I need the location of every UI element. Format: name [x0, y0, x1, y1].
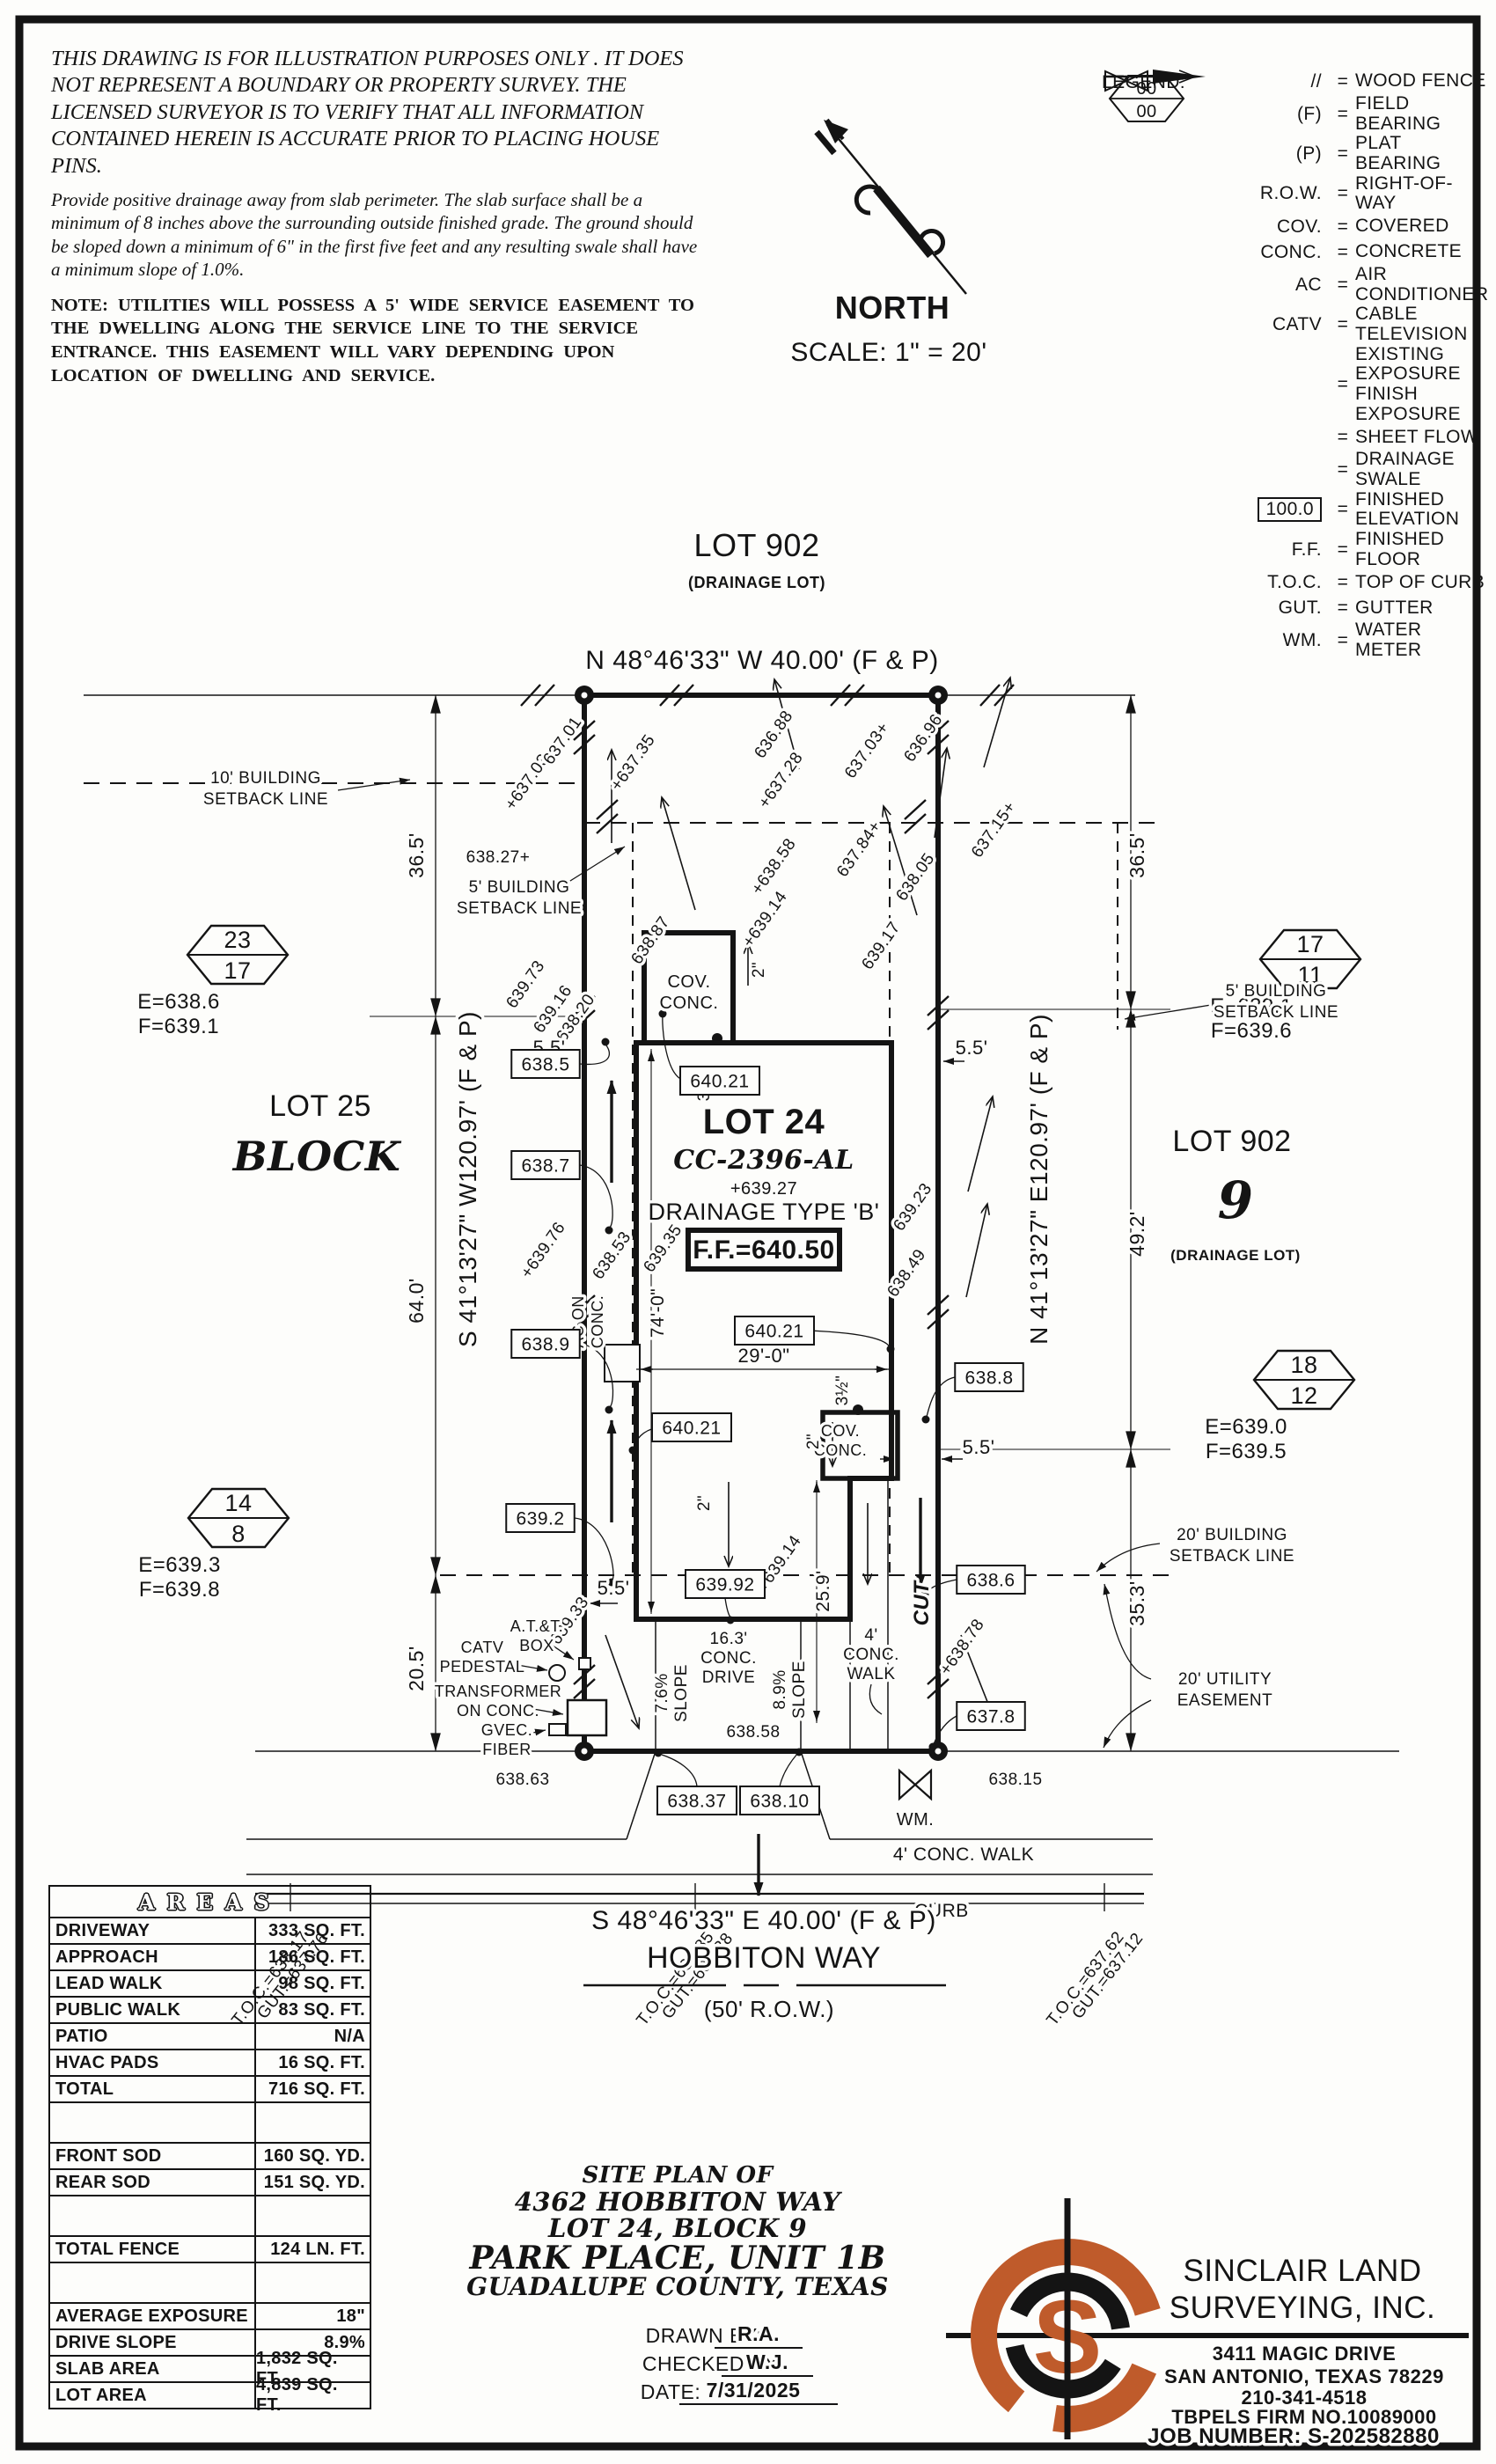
drawn-by-value: R.A.: [737, 2322, 780, 2345]
water-meter-icon: [899, 1771, 931, 1799]
plan-label: TRANSFORMER: [435, 1683, 562, 1700]
plan-label: 36.5': [1126, 832, 1148, 878]
plan-label: FIBER: [482, 1741, 532, 1758]
areas-row-value: [256, 2196, 370, 2235]
company-address-line1: 3411 MAGIC DRIVE: [1213, 2343, 1397, 2365]
spot-elevation: 638.27+: [466, 848, 531, 867]
lot25-block-label: BLOCK: [231, 1133, 402, 1180]
plan-label: 4': [864, 1626, 877, 1645]
areas-row-value: N/A: [256, 2024, 370, 2049]
north-label: NORTH: [835, 290, 950, 326]
plan-label: CONC.: [843, 1646, 899, 1664]
areas-row-value: 16 SQ. FT.: [256, 2050, 370, 2075]
drainage-note-paragraph: Provide positive drainage away from slab…: [51, 188, 709, 282]
plan-label: 5' BUILDING: [1226, 982, 1327, 1001]
plan-label: A.T.&T.: [510, 1617, 564, 1635]
company-name-line1: SINCLAIR LAND: [1183, 2254, 1421, 2288]
legend-symbol: (F): [1206, 104, 1331, 125]
plan-label: 20.5': [405, 1646, 428, 1691]
plan-label: WM.: [897, 1810, 935, 1830]
equals-sign: =: [1331, 630, 1355, 651]
bearing-south: S 48°46'33" E 40.00' (F & P): [591, 1906, 936, 1935]
street-row-label: (50' R.O.W.): [704, 1996, 834, 2022]
finished-elevation-value: 638.37: [667, 1792, 726, 1812]
plan-label: BOX: [519, 1637, 554, 1654]
exposure-f-value: F=639.1: [138, 1015, 219, 1038]
legend-description: SHEET FLOW: [1355, 428, 1489, 448]
lot902-right-sub: (DRAINAGE LOT): [1170, 1247, 1301, 1264]
legend-description: PLAT BEARING: [1355, 134, 1489, 173]
plan-label: 49.2': [1126, 1211, 1148, 1257]
sheet-flow-arrow: [966, 1204, 987, 1297]
areas-row-value: 18": [256, 2304, 370, 2328]
finished-elevation-value: 638.9: [521, 1335, 569, 1355]
sheet-flow-arrow: [605, 1635, 639, 1728]
lot24-label: LOT 24: [703, 1103, 825, 1141]
ac-pad-icon: [605, 1345, 640, 1382]
bearing-west: S 41°13'27" W120.97' (F & P): [454, 1011, 481, 1347]
legend-row: COV.=COVERED: [1206, 214, 1489, 239]
spot-elevation: 637.03+: [841, 719, 893, 782]
spot-elevation: 638.63: [495, 1771, 549, 1789]
plan-label: 2": [750, 962, 768, 978]
plan-label: PEDESTAL: [440, 1658, 525, 1676]
street-name: HOBBITON WAY: [647, 1941, 881, 1975]
utility-symbols: [549, 1345, 640, 1735]
finished-elevation-value: 638.10: [750, 1792, 809, 1812]
legend-description: CONCRETE: [1355, 242, 1489, 262]
areas-row-value: 333 SQ. FT.: [256, 1918, 370, 1943]
areas-row-label: PUBLIC WALK: [50, 1998, 256, 2022]
plan-label: SLOPE: [672, 1664, 691, 1722]
company-address-line2: SAN ANTONIO, TEXAS 78229: [1164, 2365, 1444, 2387]
plan-label: CUT: [910, 1580, 934, 1626]
lot902-right-block-number: 9: [1218, 1170, 1254, 1230]
areas-table-row: [50, 2195, 370, 2235]
plan-label: ON CONC.: [457, 1702, 539, 1720]
existing-exposure-value: 14: [224, 1490, 252, 1516]
areas-row-value: 716 SQ. FT.: [256, 2077, 370, 2101]
spot-elevation: 639.17: [858, 919, 904, 973]
job-number: JOB NUMBER: S-202582880: [1148, 2424, 1440, 2448]
equals-sign: =: [1331, 71, 1355, 92]
legend-row: (F)=FIELD BEARING: [1206, 94, 1489, 134]
lot24-spot-elevation: +639.27: [730, 1179, 797, 1199]
spot-elevation: +638.58: [748, 835, 800, 898]
plan-label: 5' BUILDING: [469, 878, 570, 897]
areas-row-value: 186 SQ. FT.: [256, 1945, 370, 1969]
exposure-e-value: E=639.0: [1205, 1415, 1287, 1439]
areas-row-value: 83 SQ. FT.: [256, 1998, 370, 2022]
legend-row: =DRAINAGE SWALE: [1206, 450, 1489, 489]
titleblock-line4: PARK PLACE, UNIT 1B: [468, 2240, 885, 2277]
plan-label: 5.5': [598, 1577, 630, 1599]
areas-row-value: 151 SQ. YD.: [256, 2170, 370, 2195]
spot-elevation: 638.87: [627, 913, 673, 968]
bearing-north: N 48°46'33" W 40.00' (F & P): [585, 646, 939, 675]
areas-row-value: 4,839 SQ. FT.: [256, 2383, 370, 2408]
plan-label: SETBACK LINE: [1214, 1003, 1338, 1022]
spot-elevation: +639.14: [739, 888, 791, 951]
areas-row-label: TOTAL FENCE: [50, 2237, 256, 2262]
plan-label: 16.3': [709, 1630, 747, 1648]
exposure-e-value: E=639.3: [138, 1553, 221, 1577]
transformer-icon: [568, 1700, 606, 1735]
spot-elevation: 637.01: [539, 714, 585, 768]
exposure-f-value: F=639.6: [1211, 1019, 1292, 1043]
areas-row-value: [256, 2103, 370, 2142]
sheet-flow-arrow: [968, 1096, 993, 1192]
spot-elevation: 638.53: [589, 1228, 634, 1283]
disclaimer-block: THIS DRAWING IS FOR ILLUSTRATION PURPOSE…: [51, 46, 709, 387]
spot-elevation: +639.76: [517, 1219, 569, 1282]
equals-sign: =: [1331, 314, 1355, 335]
legend-description: COVERED: [1355, 216, 1489, 237]
areas-row-label: REAR SOD: [50, 2170, 256, 2195]
plan-label: SLOPE: [790, 1661, 809, 1719]
house-footprint: [636, 933, 898, 1619]
plan-label: EASEMENT: [1177, 1691, 1273, 1710]
spot-elevation: 639.73: [502, 957, 548, 1012]
areas-row-label: LEAD WALK: [50, 1971, 256, 1996]
areas-table-row: LOT AREA4,839 SQ. FT.: [50, 2381, 370, 2408]
equals-sign: =: [1331, 499, 1355, 520]
areas-table-row: LEAD WALK98 SQ. FT.: [50, 1969, 370, 1996]
legend-description: EXISTING EXPOSUREFINISH EXPOSURE: [1355, 345, 1489, 425]
areas-row-label: SLAB AREA: [50, 2357, 256, 2381]
areas-row-label: HVAC PADS: [50, 2050, 256, 2075]
plan-label: 5.5': [956, 1037, 988, 1059]
legend-description: FINISHED ELEVATION: [1355, 490, 1489, 530]
svg-text:00: 00: [1136, 102, 1156, 121]
areas-table-row: TOTAL716 SQ. FT.: [50, 2075, 370, 2101]
toc-gutter-label: T.O.C.=637.62GUT.=637.12: [1044, 1919, 1148, 2039]
scale-label: SCALE: 1" = 20': [790, 338, 986, 367]
areas-row-label: TOTAL: [50, 2077, 256, 2101]
plan-label: 5.5': [963, 1436, 995, 1458]
catv-pedestal-icon: [549, 1665, 565, 1681]
legend-row: =SHEET FLOW: [1206, 424, 1489, 450]
areas-table-row: PATION/A: [50, 2022, 370, 2049]
plan-label: SETBACK LINE: [1170, 1547, 1294, 1566]
plan-label: CONC.: [589, 1295, 606, 1349]
lot902-top-label: LOT 902: [694, 527, 820, 563]
finished-elevation-value: 638.8: [964, 1368, 1013, 1389]
finished-elevation-value: 638.6: [966, 1571, 1015, 1591]
areas-table-row: HVAC PADS16 SQ. FT.: [50, 2049, 370, 2075]
titleblock-line5: GUADALUPE COUNTY, TEXAS: [466, 2272, 889, 2301]
north-arrow-icon: [817, 120, 966, 294]
finished-elevation-icon: 100.0: [1206, 497, 1331, 522]
areas-table-title: AREAS: [48, 1885, 371, 1918]
plan-label: DRIVE: [702, 1668, 756, 1687]
checked-by-value: W.J.: [746, 2350, 788, 2373]
finished-floor-value: F.F.=640.50: [693, 1236, 834, 1265]
utilities-note-paragraph: NOTE: UTILITIES WILL POSSESS A 5' WIDE S…: [51, 294, 709, 388]
legend-row: CATV=CABLE TELEVISION: [1206, 304, 1489, 344]
legend-row: R.O.W.=RIGHT-OF-WAY: [1206, 174, 1489, 214]
plan-label: CATV: [461, 1639, 504, 1656]
legend-row: T.O.C.=TOP OF CURB: [1206, 569, 1489, 595]
plan-label: SETBACK LINE: [457, 899, 582, 918]
legend-description: AIR CONDITIONER: [1355, 265, 1489, 304]
existing-exposure-value: 23: [224, 927, 251, 953]
areas-row-label: [50, 2263, 256, 2302]
equals-sign: =: [1331, 459, 1355, 480]
plan-label: 29'-0": [737, 1345, 789, 1367]
legend-row: (P)=PLAT BEARING: [1206, 134, 1489, 173]
plan-label: 25.9': [813, 1570, 833, 1611]
existing-exposure-value: 17: [1296, 931, 1324, 957]
plan-label: SETBACK LINE: [203, 790, 328, 809]
title-block: SITE PLAN OF 4362 HOBBITON WAY LOT 24, B…: [466, 2162, 889, 2404]
gvec-fiber-icon: [549, 1724, 566, 1735]
lot902-top-sub: (DRAINAGE LOT): [688, 574, 825, 591]
areas-table-row: [50, 2262, 370, 2302]
drainage-type-label: DRAINAGE TYPE 'B': [649, 1199, 880, 1225]
plan-label: 74'-0": [648, 1288, 668, 1338]
legend-row: //=WOOD FENCE: [1206, 69, 1489, 94]
spot-elevation: 637.15+: [968, 798, 1020, 862]
legend-symbol: F.F.: [1206, 539, 1331, 561]
titleblock-line2: 4362 HOBBITON WAY: [515, 2187, 843, 2217]
plan-label: WALK: [847, 1665, 895, 1683]
finished-elevation-value: 640.21: [744, 1322, 803, 1342]
legend-symbol: CATV: [1206, 314, 1331, 335]
equals-sign: =: [1331, 572, 1355, 593]
titleblock-line1: SITE PLAN OF: [582, 2162, 774, 2189]
areas-row-value: 98 SQ. FT.: [256, 1971, 370, 1996]
plan-label: 20' UTILITY: [1178, 1670, 1272, 1689]
areas-row-label: LOT AREA: [50, 2383, 256, 2408]
lot25-label: LOT 25: [269, 1089, 371, 1123]
sheet-flow-arrow: [662, 797, 695, 910]
finish-exposure-value: 8: [231, 1521, 246, 1547]
legend-description: FIELD BEARING: [1355, 94, 1489, 134]
water-meter-icon: WM.: [1206, 630, 1331, 651]
finished-elevation-value: 639.92: [695, 1575, 754, 1595]
equals-sign: =: [1331, 216, 1355, 238]
exposure-f-value: F=639.8: [139, 1578, 220, 1602]
legend-symbol: AC: [1206, 275, 1331, 296]
areas-table-row: REAR SOD151 SQ. YD.: [50, 2168, 370, 2195]
plan-label: 3½": [833, 1375, 852, 1406]
areas-row-value: [256, 2263, 370, 2302]
legend-symbol: (P): [1206, 143, 1331, 165]
site-plan-sheet: NORTH SCALE: 1" = 20' LOT 902 (DRAINAGE …: [0, 0, 1496, 2464]
areas-row-label: APPROACH: [50, 1945, 256, 1969]
legend: LEGEND: //=WOOD FENCE(F)=FIELD BEARING(P…: [1102, 69, 1489, 661]
plan-label: 36.5': [405, 832, 428, 878]
equals-sign: =: [1331, 427, 1355, 448]
areas-table-row: APPROACH186 SQ. FT.: [50, 1943, 370, 1969]
legend-row: 100.0=FINISHED ELEVATION: [1206, 490, 1489, 530]
lot24-cc-number: CC-2396-AL: [673, 1145, 854, 1176]
spot-elevation: 638.15: [988, 1771, 1042, 1789]
legend-row: AC=AIR CONDITIONER: [1206, 265, 1489, 304]
areas-row-value: 160 SQ. YD.: [256, 2144, 370, 2168]
areas-row-label: DRIVEWAY: [50, 1918, 256, 1943]
spot-elevation: +637.35: [607, 731, 659, 795]
areas-table-row: DRIVEWAY333 SQ. FT.: [50, 1918, 370, 1943]
equals-sign: =: [1331, 598, 1355, 619]
plan-label: 35.3': [1126, 1580, 1148, 1626]
plan-label: 7.6%: [653, 1673, 671, 1712]
plan-label: CONC.: [660, 994, 719, 1013]
legend-description: TOP OF CURB: [1355, 573, 1489, 593]
legend-symbol: COV.: [1206, 216, 1331, 238]
areas-row-label: [50, 2196, 256, 2235]
spot-elevation: 637.84+: [833, 818, 885, 881]
legend-description: GUTTER: [1355, 598, 1489, 619]
legend-description: DRAINAGE SWALE: [1355, 450, 1489, 489]
lot902-right-label: LOT 902: [1172, 1125, 1291, 1158]
areas-table-row: TOTAL FENCE124 LN. FT.: [50, 2235, 370, 2262]
att-box-icon: [579, 1658, 590, 1669]
plan-label: 64.0': [405, 1278, 428, 1324]
plan-label: GVEC.: [481, 1721, 533, 1739]
finish-exposure-value: 12: [1290, 1382, 1317, 1409]
company-block: SINCLAIR LAND SURVEYING, INC. 3411 MAGIC…: [1148, 2254, 1444, 2448]
legend-row: CONC.=CONCRETE: [1206, 239, 1489, 265]
existing-exposure-value: 18: [1290, 1352, 1317, 1378]
plan-label: COV.: [667, 972, 710, 992]
plan-label: 2": [695, 1495, 714, 1511]
plan-label: COV.: [821, 1422, 860, 1440]
legend-row: 0000=EXISTING EXPOSUREFINISH EXPOSURE: [1206, 345, 1489, 425]
areas-row-label: AVERAGE EXPOSURE: [50, 2304, 256, 2328]
date-value: 7/31/2025: [707, 2379, 801, 2402]
plan-label: 8.9%: [771, 1669, 789, 1709]
legend-description: CABLE TELEVISION: [1355, 304, 1489, 344]
spot-elevation: 638.58: [726, 1723, 780, 1742]
finished-elevation-value: 640.21: [690, 1072, 749, 1092]
areas-table-row: [50, 2101, 370, 2142]
legend-row: GUT.=GUTTER: [1206, 595, 1489, 620]
areas-table-row: FRONT SOD160 SQ. YD.: [50, 2142, 370, 2168]
equals-sign: =: [1331, 104, 1355, 125]
bearing-east: N 41°13'27" E120.97' (F & P): [1025, 1014, 1052, 1345]
date-label: DATE:: [641, 2380, 701, 2403]
plan-label: CONC.: [700, 1649, 757, 1668]
areas-table-row: AVERAGE EXPOSURE18": [50, 2302, 370, 2328]
legend-symbol: GUT.: [1206, 598, 1331, 619]
areas-row-label: DRIVE SLOPE: [50, 2330, 256, 2355]
exposure-e-value: E=638.6: [137, 990, 220, 1014]
spot-elevation: 639.35: [640, 1221, 686, 1276]
equals-sign: =: [1331, 374, 1355, 395]
plan-label: 2": [804, 1434, 823, 1449]
areas-table-row: PUBLIC WALK83 SQ. FT.: [50, 1996, 370, 2022]
legend-symbol: //: [1206, 71, 1331, 92]
equals-sign: =: [1331, 539, 1355, 561]
areas-row-label: FRONT SOD: [50, 2144, 256, 2168]
equals-sign: =: [1331, 242, 1355, 263]
finish-exposure-value: 17: [224, 957, 251, 984]
finished-elevation-box: 100.0: [1258, 497, 1322, 522]
disclaimer-paragraph: THIS DRAWING IS FOR ILLUSTRATION PURPOSE…: [51, 46, 709, 180]
areas-row-label: [50, 2103, 256, 2142]
finished-elevation-value: 638.5: [521, 1055, 569, 1075]
plan-label: 20' BUILDING: [1177, 1526, 1287, 1544]
company-name-line2: SURVEYING, INC.: [1170, 2291, 1435, 2325]
finished-elevation-value: 639.2: [516, 1509, 564, 1529]
legend-symbol: CONC.: [1206, 242, 1331, 263]
equals-sign: =: [1331, 183, 1355, 204]
areas-table: AREAS DRIVEWAY333 SQ. FT.APPROACH186 SQ.…: [48, 1885, 371, 2409]
plan-label: 4' CONC. WALK: [893, 1844, 1034, 1865]
legend-symbol: T.O.C.: [1206, 572, 1331, 593]
legend-description: WOOD FENCE: [1355, 71, 1489, 92]
legend-description: WATER METER: [1355, 620, 1489, 660]
finished-elevation-value: 638.7: [521, 1156, 569, 1177]
legend-symbol: R.O.W.: [1206, 183, 1331, 204]
finished-elevation-value: 637.8: [966, 1707, 1015, 1727]
legend-row: F.F.=FINISHED FLOOR: [1206, 530, 1489, 569]
legend-row: WM.=WATER METER: [1206, 620, 1489, 660]
legend-description: RIGHT-OF-WAY: [1355, 174, 1489, 214]
plan-label: 10' BUILDING: [210, 769, 321, 788]
legend-description: FINISHED FLOOR: [1355, 530, 1489, 569]
finished-elevation-value: 640.21: [662, 1419, 721, 1439]
areas-row-value: 124 LN. FT.: [256, 2237, 370, 2262]
equals-sign: =: [1331, 275, 1355, 296]
exposure-f-value: F=639.5: [1206, 1440, 1287, 1463]
spot-elevation: +638.78: [936, 1616, 988, 1679]
areas-row-label: PATIO: [50, 2024, 256, 2049]
equals-sign: =: [1331, 143, 1355, 165]
sheet-flow-arrow: [984, 678, 1010, 767]
spot-elevation: 639.23: [890, 1180, 935, 1235]
titleblock-line3: LOT 24, BLOCK 9: [547, 2213, 807, 2243]
